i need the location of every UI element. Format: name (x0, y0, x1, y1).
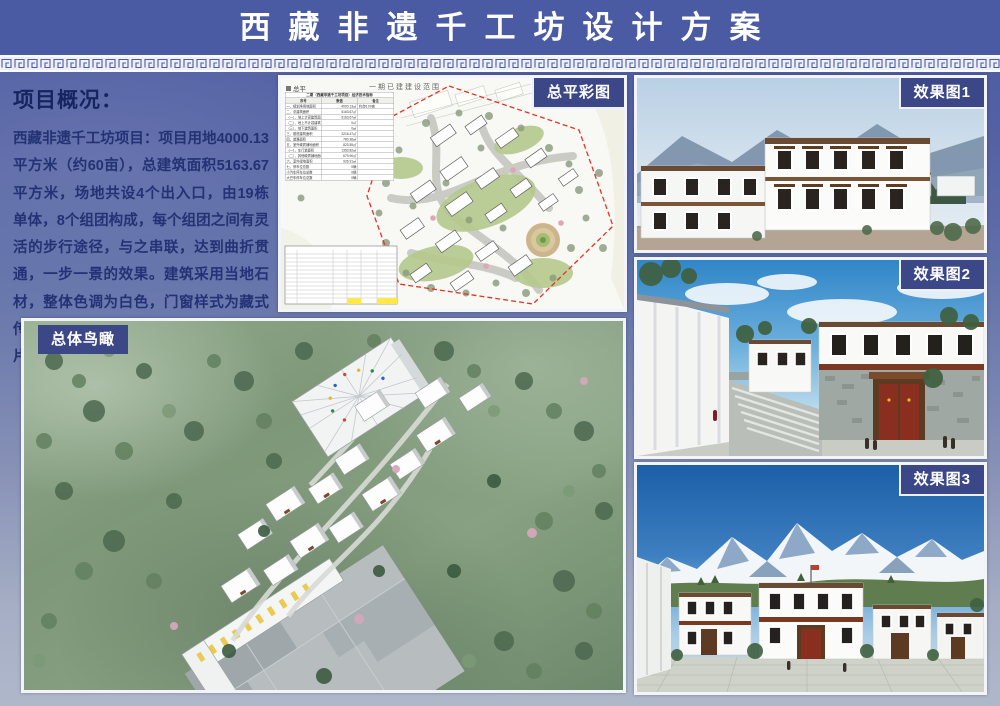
render1-main-building (765, 138, 930, 230)
render2-label: 效果图2 (899, 260, 984, 291)
poster-title: 西藏非遗千工坊设计方案 (0, 0, 1000, 56)
header: 西藏非遗千工坊设计方案 (0, 0, 1000, 55)
render3-label: 效果图3 (899, 465, 984, 496)
meander-border (0, 55, 1000, 72)
poster: 西藏非遗千工坊设计方案 项目概况： 西藏非遗千工坊项目：项目用地4000.13平… (0, 0, 1000, 706)
render3-panel: 效果图3 (634, 462, 987, 695)
render2-left-wall (637, 294, 729, 456)
aerial-panel: 总体鸟瞰 (21, 318, 626, 693)
render3-illustration (637, 465, 984, 692)
render1-label: 效果图1 (899, 78, 984, 109)
render1-left-building (641, 166, 765, 238)
render2-center-building (749, 340, 811, 392)
site-plan-panel: 一期已建建设范围 总平 二期（西藏非遗千工坊项目）经济技术指标序号数值备注一、规… (278, 75, 627, 312)
site-plan-circle-feature (526, 223, 560, 257)
render1-panel: 效果图1 (634, 75, 987, 253)
overview-heading: 项目概况： (13, 84, 269, 114)
meander-pattern-icon (0, 57, 1000, 70)
indicator-table: 二期（西藏非遗千工坊项目）经济技术指标序号数值备注一、规划净用地面积4000.1… (285, 92, 394, 181)
aerial-label: 总体鸟瞰 (38, 325, 128, 354)
site-plan-drawing-title: 一期已建建设范围 (369, 82, 441, 92)
render2-panel: 效果图2 (634, 257, 987, 459)
unit-index-table (285, 246, 397, 304)
render2-main-building (819, 322, 984, 440)
aerial-grand-hall (292, 334, 435, 462)
site-plan-label: 总平彩图 (532, 78, 624, 109)
aerial-illustration (24, 321, 623, 690)
